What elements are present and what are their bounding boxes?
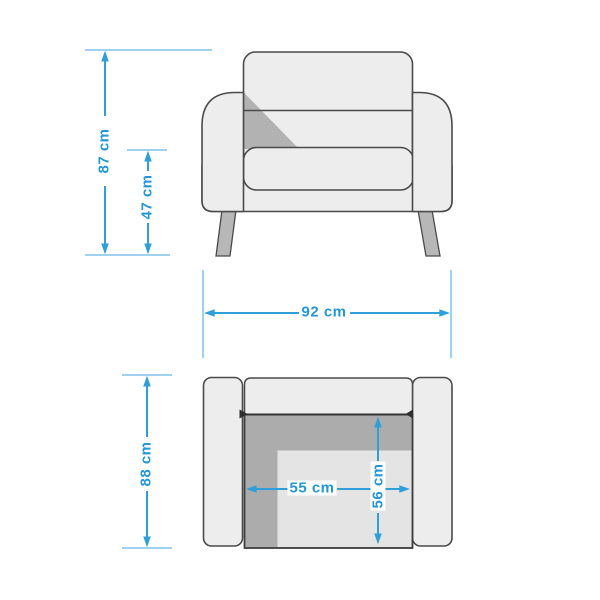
arrowhead-down-icon (144, 244, 152, 255)
label-overall-depth: 88 cm (139, 439, 154, 488)
top-right-armrest (413, 378, 453, 547)
arrowhead-up-icon (144, 151, 152, 162)
top-left-armrest (204, 378, 243, 547)
arrowhead-down-icon (143, 537, 151, 548)
arrowhead-left-icon (204, 309, 215, 317)
front-left-armrest (202, 93, 244, 212)
front-right-armrest (413, 93, 453, 212)
arrowhead-up-icon (101, 51, 109, 62)
arrowhead-up-icon (143, 376, 151, 387)
label-overall-width: 92 cm (299, 305, 348, 320)
front-seat-cushion (244, 148, 414, 191)
top-seat-surface (278, 451, 412, 548)
label-seat-depth: 56 cm (371, 461, 386, 510)
front-elevation-view (202, 52, 452, 256)
diagram-drawing (0, 0, 600, 600)
top-backrest (245, 378, 413, 415)
arrowhead-right-icon (439, 309, 450, 317)
front-left-leg (216, 210, 236, 256)
arrowhead-down-icon (101, 244, 109, 255)
top-plan-view (204, 378, 453, 549)
armchair-dimension-diagram: 87 cm 47 cm 92 cm 88 cm 55 cm 56 cm (0, 0, 600, 600)
label-overall-height: 87 cm (97, 126, 112, 175)
label-seat-width: 55 cm (287, 481, 336, 496)
label-seat-height: 47 cm (140, 172, 155, 221)
front-right-leg (418, 210, 440, 256)
